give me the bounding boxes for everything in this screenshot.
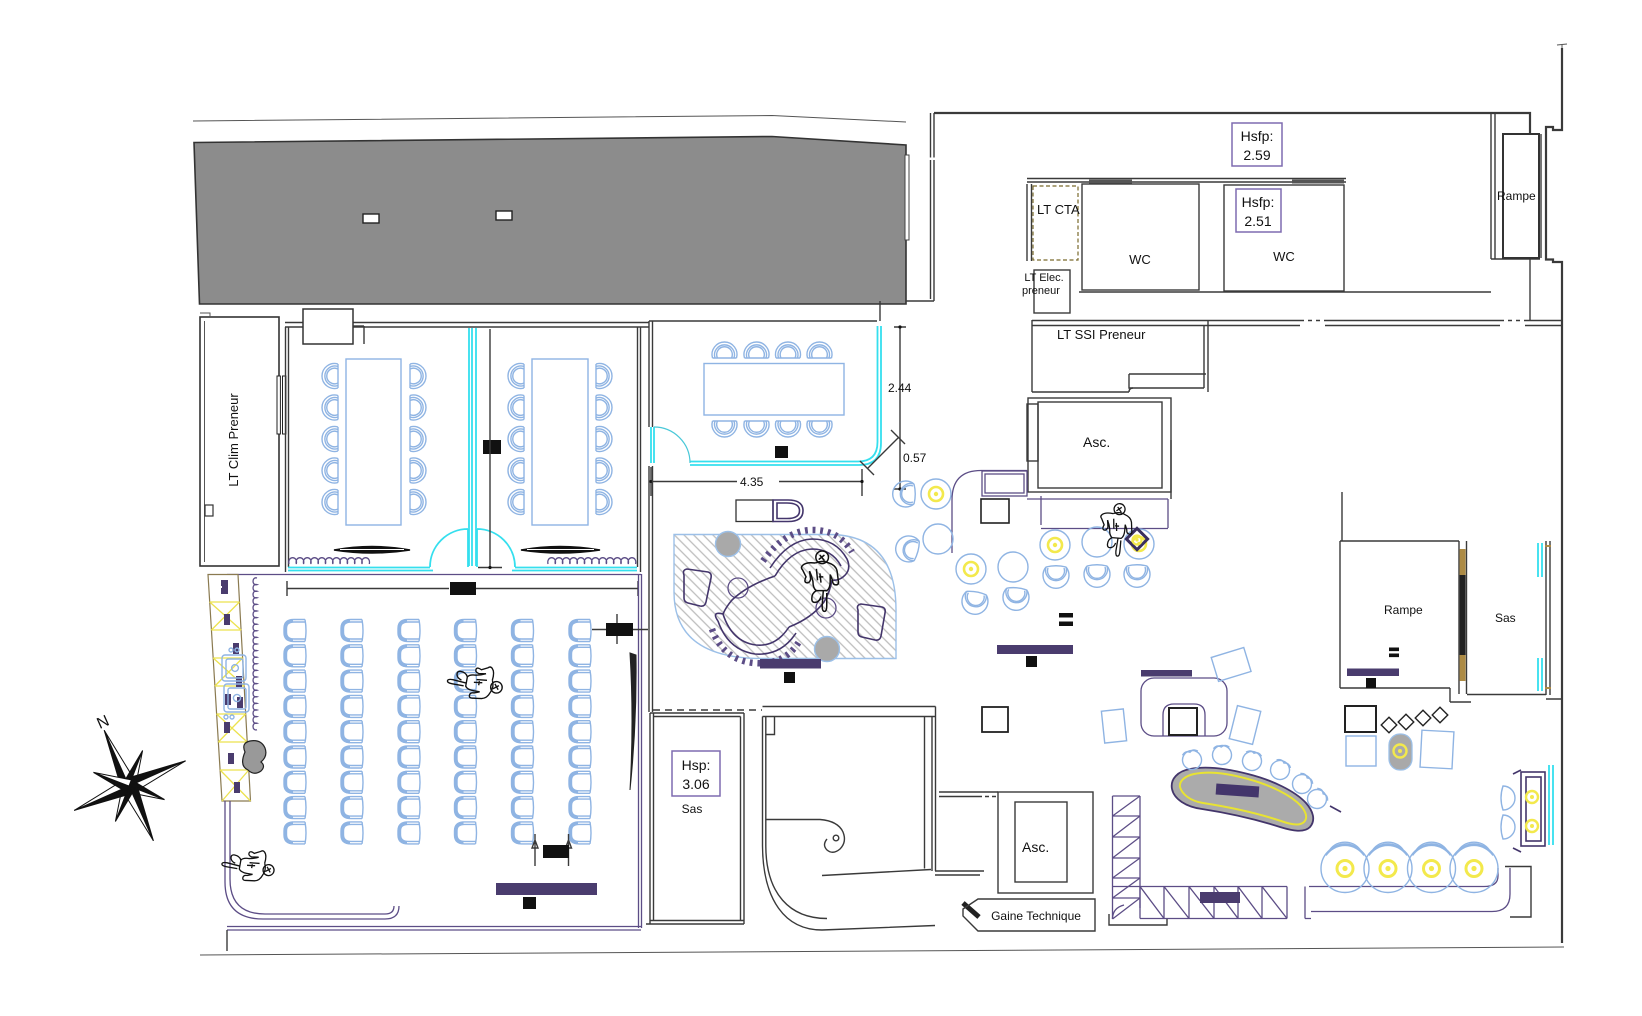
svg-text:Asc.: Asc. <box>1022 839 1049 855</box>
svg-text:N: N <box>94 713 111 733</box>
svg-text:Hsfp:: Hsfp: <box>1241 128 1274 144</box>
svg-text:Gaine Technique: Gaine Technique <box>991 909 1081 923</box>
svg-text:LT Clim Preneur: LT Clim Preneur <box>226 393 241 487</box>
svg-text:2.51: 2.51 <box>1244 213 1271 229</box>
svg-text:3.06: 3.06 <box>682 776 709 792</box>
svg-text:LT CTA: LT CTA <box>1037 202 1080 217</box>
svg-text:Rampe: Rampe <box>1497 189 1536 203</box>
svg-text:0.57: 0.57 <box>903 451 927 465</box>
svg-text:WC: WC <box>1129 252 1151 267</box>
svg-text:Rampe: Rampe <box>1384 603 1423 617</box>
svg-text:preneur: preneur <box>1022 285 1060 297</box>
svg-text:2.59: 2.59 <box>1243 147 1270 163</box>
svg-text:2.44: 2.44 <box>888 381 912 395</box>
svg-text:LT SSI Preneur: LT SSI Preneur <box>1057 327 1146 342</box>
svg-text:Sas: Sas <box>682 802 703 816</box>
svg-text:Sas: Sas <box>1495 611 1516 625</box>
svg-text:4.35: 4.35 <box>740 475 764 489</box>
svg-text:WC: WC <box>1273 249 1295 264</box>
svg-text:Asc.: Asc. <box>1083 434 1110 450</box>
svg-text:LT Elec.: LT Elec. <box>1024 272 1063 284</box>
svg-text:Hsfp:: Hsfp: <box>1242 194 1275 210</box>
svg-text:Hsp:: Hsp: <box>682 757 711 773</box>
